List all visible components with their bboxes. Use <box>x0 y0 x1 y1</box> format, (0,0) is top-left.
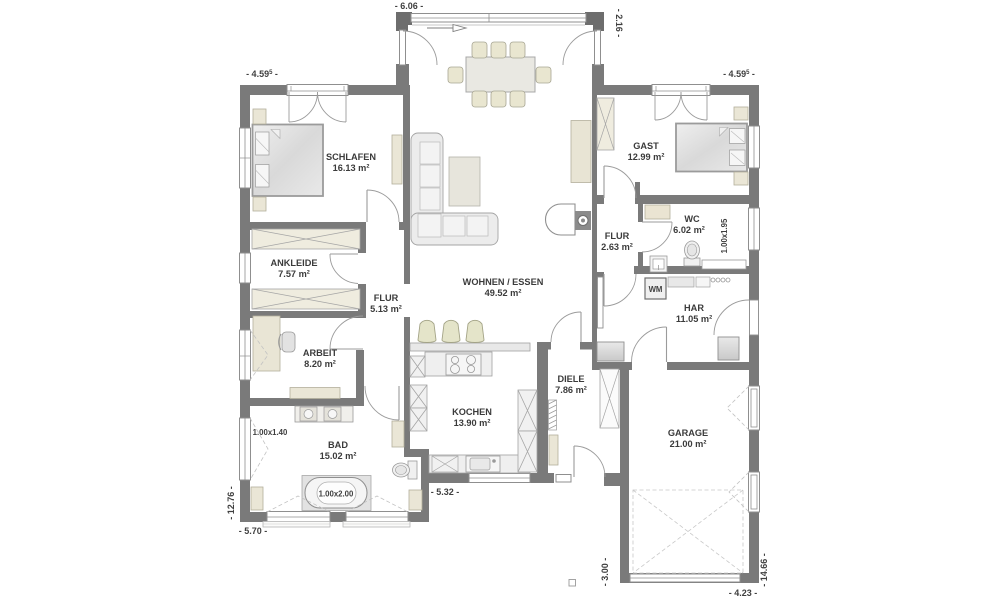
svg-text:49.52 m²: 49.52 m² <box>485 288 522 298</box>
svg-text:- 4.595 -: - 4.595 - <box>723 69 755 79</box>
svg-text:- 5.32 -: - 5.32 - <box>431 487 460 497</box>
svg-text:DIELE: DIELE <box>557 374 584 384</box>
svg-text:WOHNEN / ESSEN: WOHNEN / ESSEN <box>463 277 544 287</box>
svg-text:- 14.66 -: - 14.66 - <box>759 553 769 587</box>
svg-text:13.90 m²: 13.90 m² <box>454 418 491 428</box>
svg-text:FLUR: FLUR <box>374 293 399 303</box>
svg-text:GAST: GAST <box>633 141 659 151</box>
svg-text:15.02 m²: 15.02 m² <box>320 451 357 461</box>
svg-text:8.20 m²: 8.20 m² <box>304 359 336 369</box>
svg-text:12.99 m²: 12.99 m² <box>628 152 665 162</box>
svg-text:- 2.16 -: - 2.16 - <box>614 9 624 38</box>
svg-text:GARAGE: GARAGE <box>668 428 708 438</box>
svg-text:- 12.76 -: - 12.76 - <box>226 486 236 520</box>
svg-text:7.57 m²: 7.57 m² <box>278 269 310 279</box>
svg-text:21.00 m²: 21.00 m² <box>670 439 707 449</box>
svg-text:2.63 m²: 2.63 m² <box>601 242 633 252</box>
svg-text:WC: WC <box>684 214 700 224</box>
svg-text:SCHLAFEN: SCHLAFEN <box>326 152 376 162</box>
svg-text:FLUR: FLUR <box>605 231 630 241</box>
svg-text:6.02 m²: 6.02 m² <box>673 225 705 235</box>
svg-text:BAD: BAD <box>328 440 348 450</box>
svg-text:1.00x1.40: 1.00x1.40 <box>253 428 288 437</box>
svg-text:- 5.70 -: - 5.70 - <box>239 526 268 536</box>
svg-text:1.00x2.00: 1.00x2.00 <box>319 490 354 499</box>
svg-text:7.86 m²: 7.86 m² <box>555 385 587 395</box>
svg-text:1.00x1.95: 1.00x1.95 <box>720 218 729 253</box>
svg-text:ANKLEIDE: ANKLEIDE <box>271 258 318 268</box>
svg-text:HAR: HAR <box>684 303 704 313</box>
svg-text:- 4.23 -: - 4.23 - <box>729 588 758 598</box>
svg-text:- 4.595 -: - 4.595 - <box>246 69 278 79</box>
svg-text:11.05 m²: 11.05 m² <box>676 314 712 324</box>
svg-text:- 3.00 -: - 3.00 - <box>600 558 610 587</box>
svg-text:WM: WM <box>649 285 663 294</box>
svg-text:- 6.06 -: - 6.06 - <box>395 1 424 11</box>
svg-text:KOCHEN: KOCHEN <box>452 407 492 417</box>
svg-text:5.13 m²: 5.13 m² <box>370 304 402 314</box>
svg-text:16.13 m²: 16.13 m² <box>333 163 370 173</box>
svg-text:ARBEIT: ARBEIT <box>303 348 338 358</box>
